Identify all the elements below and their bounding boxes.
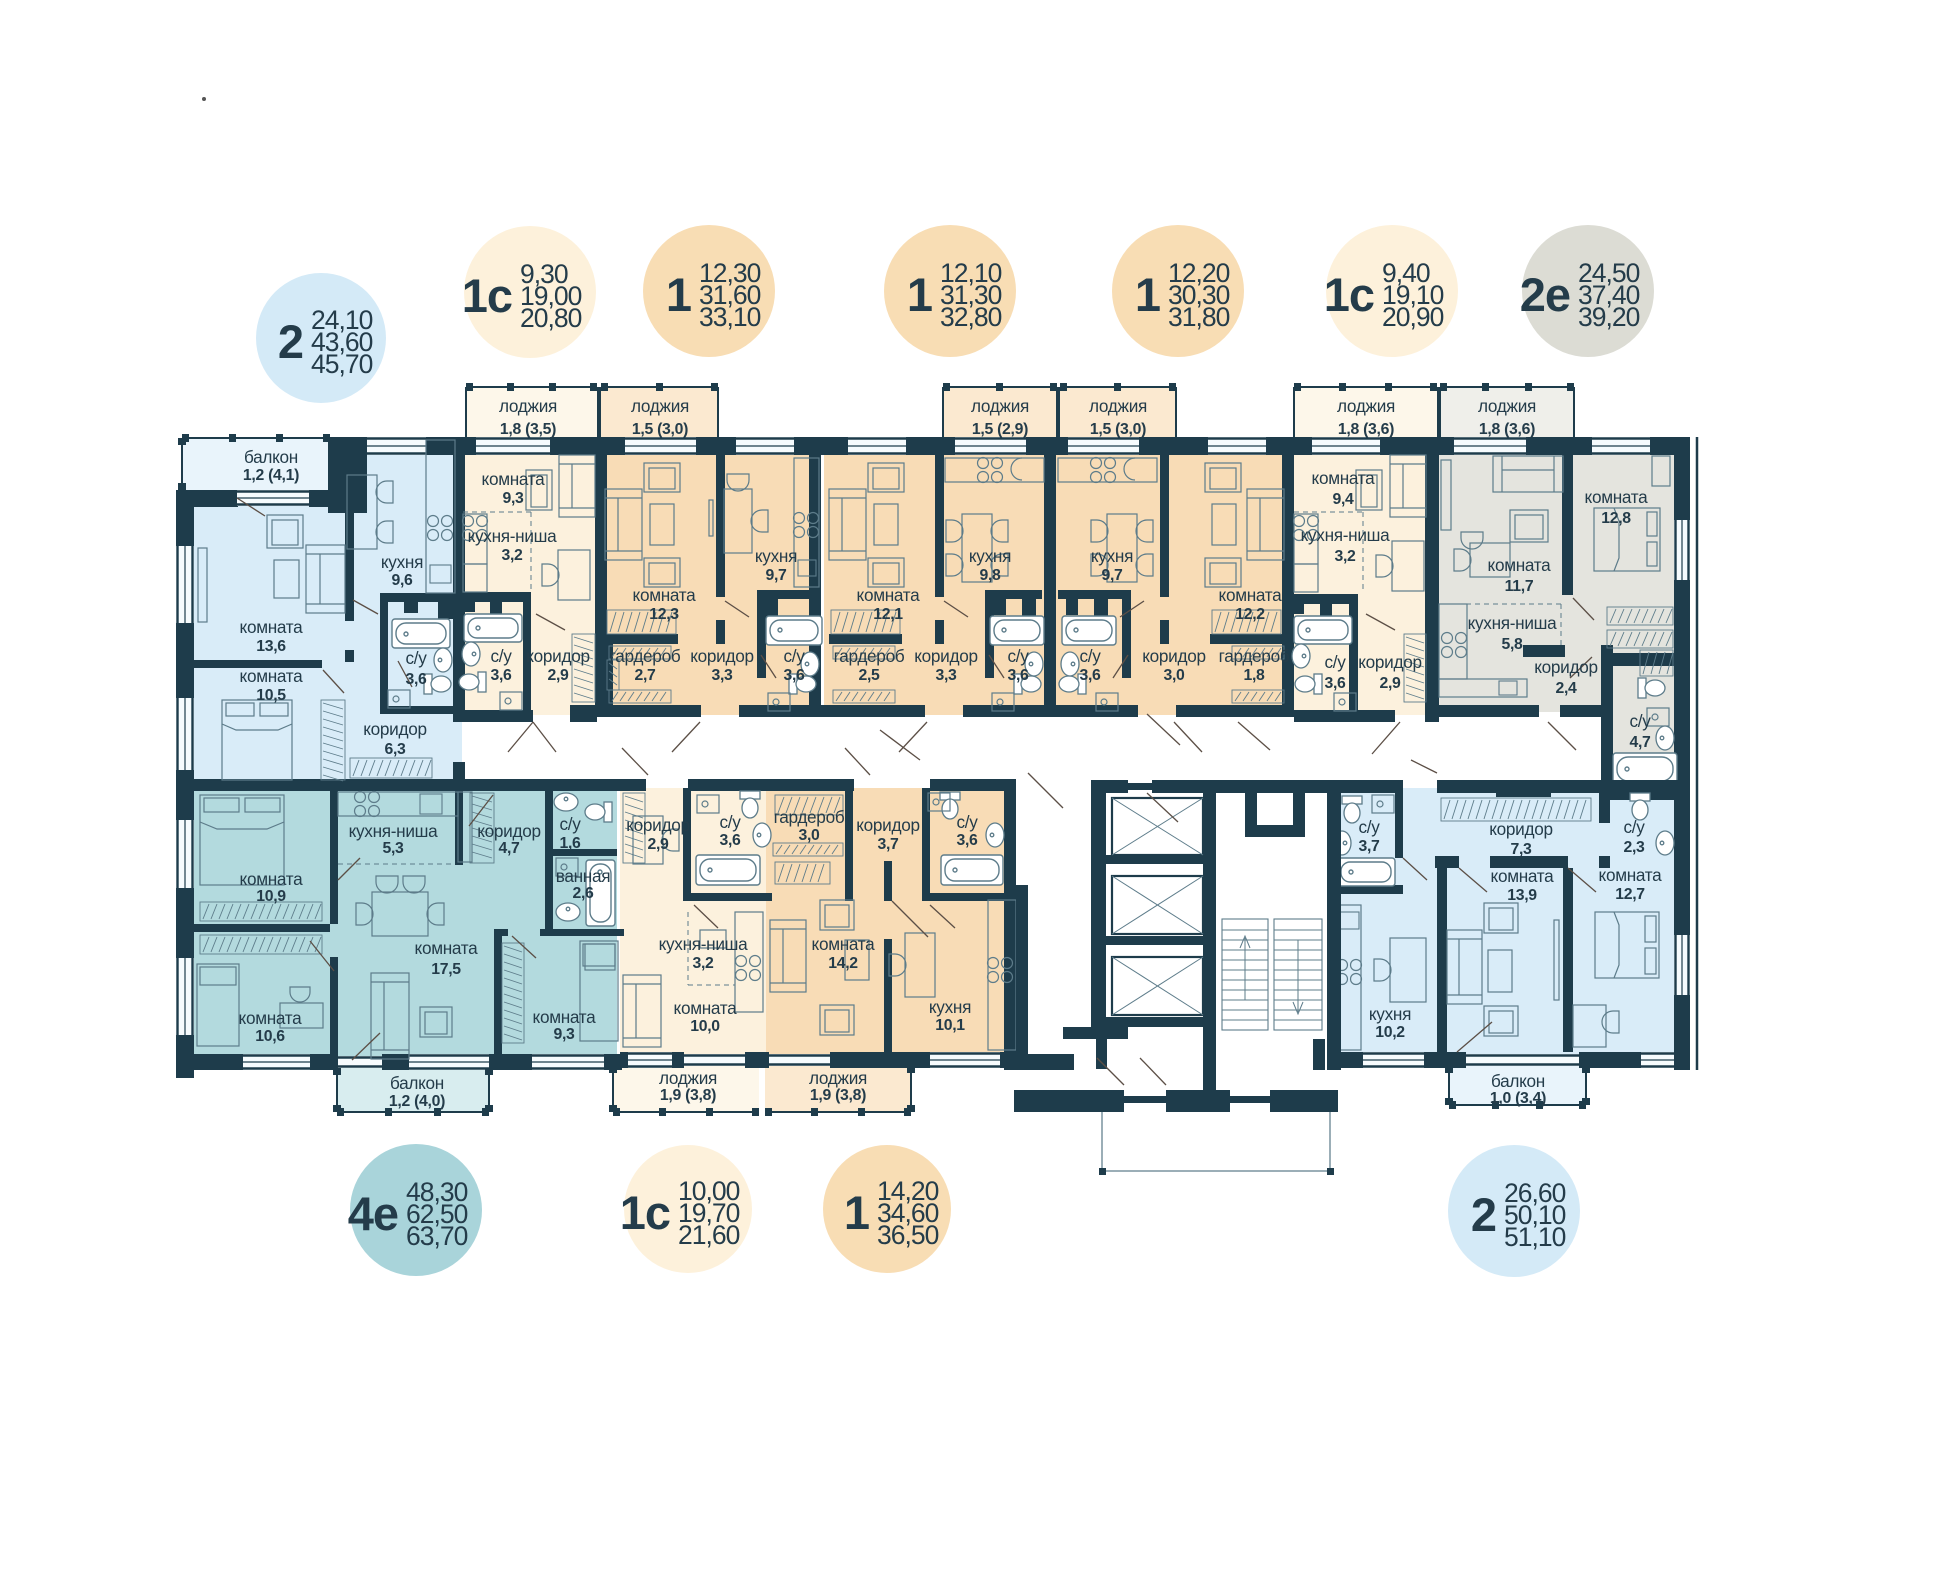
svg-text:2,9: 2,9 xyxy=(647,836,669,853)
svg-text:комната: комната xyxy=(240,617,304,637)
svg-text:2,4: 2,4 xyxy=(1555,680,1577,697)
svg-text:1: 1 xyxy=(844,1186,869,1239)
svg-text:комната: комната xyxy=(240,869,304,889)
svg-text:кухня: кухня xyxy=(1369,1004,1411,1024)
svg-text:кухня-ниша: кухня-ниша xyxy=(659,934,749,954)
svg-text:63,70: 63,70 xyxy=(406,1221,468,1251)
svg-text:3,6: 3,6 xyxy=(956,832,978,849)
svg-text:14,2: 14,2 xyxy=(828,955,858,972)
svg-text:39,20: 39,20 xyxy=(1578,302,1640,332)
svg-text:с/у: с/у xyxy=(1324,652,1346,672)
svg-text:кухня: кухня xyxy=(1091,546,1133,566)
svg-text:кухня-ниша: кухня-ниша xyxy=(468,526,558,546)
svg-text:1,9 (3,8): 1,9 (3,8) xyxy=(660,1087,716,1104)
svg-text:10,2: 10,2 xyxy=(1375,1024,1405,1041)
svg-text:9,4: 9,4 xyxy=(1332,491,1354,508)
svg-text:12,2: 12,2 xyxy=(1235,606,1265,623)
svg-text:12,7: 12,7 xyxy=(1615,886,1645,903)
svg-text:коридор: коридор xyxy=(1358,652,1421,672)
svg-text:3,2: 3,2 xyxy=(1334,548,1356,565)
svg-text:кухня-ниша: кухня-ниша xyxy=(1301,525,1391,545)
svg-text:3,0: 3,0 xyxy=(798,827,820,844)
svg-text:9,3: 9,3 xyxy=(502,490,524,507)
svg-text:коридор: коридор xyxy=(1534,657,1597,677)
svg-text:3,6: 3,6 xyxy=(405,671,427,688)
svg-text:9,8: 9,8 xyxy=(979,567,1001,584)
svg-text:36,50: 36,50 xyxy=(877,1220,939,1250)
svg-text:коридор: коридор xyxy=(526,646,589,666)
svg-text:51,10: 51,10 xyxy=(1504,1222,1566,1252)
svg-text:лоджия: лоджия xyxy=(1337,396,1395,416)
svg-text:1,0 (3,4): 1,0 (3,4) xyxy=(1490,1090,1546,1107)
svg-text:4,7: 4,7 xyxy=(1629,734,1651,751)
svg-text:коридор: коридор xyxy=(914,646,977,666)
svg-text:кухня: кухня xyxy=(969,546,1011,566)
svg-text:кухня: кухня xyxy=(929,997,971,1017)
svg-text:10,9: 10,9 xyxy=(256,888,286,905)
svg-text:с/у: с/у xyxy=(490,646,512,666)
svg-text:гардероб: гардероб xyxy=(1219,646,1290,666)
svg-text:31,80: 31,80 xyxy=(1168,302,1230,332)
svg-text:ванная: ванная xyxy=(556,866,611,886)
svg-text:1: 1 xyxy=(907,268,932,321)
svg-text:1: 1 xyxy=(666,268,691,321)
svg-text:6,3: 6,3 xyxy=(384,741,406,758)
svg-text:комната: комната xyxy=(1585,487,1649,507)
svg-text:9,6: 9,6 xyxy=(391,572,413,589)
svg-text:комната: комната xyxy=(415,938,479,958)
svg-text:3,6: 3,6 xyxy=(783,667,805,684)
svg-text:с/у: с/у xyxy=(559,814,581,834)
svg-text:комната: комната xyxy=(1312,468,1376,488)
svg-text:20,80: 20,80 xyxy=(520,303,582,333)
svg-text:комната: комната xyxy=(674,998,738,1018)
svg-text:1,6: 1,6 xyxy=(559,835,581,852)
svg-text:комната: комната xyxy=(1219,585,1283,605)
svg-text:с/у: с/у xyxy=(405,648,427,668)
svg-text:2,5: 2,5 xyxy=(858,667,880,684)
svg-text:17,5: 17,5 xyxy=(431,961,461,978)
svg-text:кухня: кухня xyxy=(755,546,797,566)
svg-text:21,60: 21,60 xyxy=(678,1220,740,1250)
svg-text:коридор: коридор xyxy=(1489,819,1552,839)
svg-text:кухня: кухня xyxy=(381,552,423,572)
svg-text:комната: комната xyxy=(482,469,546,489)
svg-text:3,6: 3,6 xyxy=(490,667,512,684)
svg-text:2,9: 2,9 xyxy=(547,667,569,684)
svg-text:балкон: балкон xyxy=(244,447,298,467)
svg-text:3,3: 3,3 xyxy=(935,667,957,684)
svg-text:3,6: 3,6 xyxy=(719,832,741,849)
svg-text:2,6: 2,6 xyxy=(572,885,594,902)
svg-text:коридор: коридор xyxy=(856,815,919,835)
svg-text:комната: комната xyxy=(812,934,876,954)
svg-text:комната: комната xyxy=(857,585,921,605)
svg-text:12,1: 12,1 xyxy=(873,606,903,623)
svg-text:с/у: с/у xyxy=(1007,646,1029,666)
svg-text:4е: 4е xyxy=(348,1187,398,1240)
svg-text:с/у: с/у xyxy=(719,812,741,832)
svg-text:коридор: коридор xyxy=(363,719,426,739)
svg-text:12,3: 12,3 xyxy=(649,606,679,623)
svg-text:коридор: коридор xyxy=(1142,646,1205,666)
svg-text:32,80: 32,80 xyxy=(940,302,1002,332)
svg-text:10,6: 10,6 xyxy=(255,1028,285,1045)
svg-text:2е: 2е xyxy=(1520,268,1570,321)
svg-text:балкон: балкон xyxy=(1491,1071,1545,1091)
svg-text:1,2 (4,1): 1,2 (4,1) xyxy=(243,467,299,484)
svg-text:с/у: с/у xyxy=(1629,711,1651,731)
svg-text:9,3: 9,3 xyxy=(553,1026,575,1043)
svg-text:лоджия: лоджия xyxy=(631,396,689,416)
svg-text:3,2: 3,2 xyxy=(501,547,523,564)
svg-text:1с: 1с xyxy=(462,269,512,322)
svg-text:3,6: 3,6 xyxy=(1324,675,1346,692)
svg-text:1,8 (3,5): 1,8 (3,5) xyxy=(500,421,556,438)
svg-text:лоджия: лоджия xyxy=(971,396,1029,416)
svg-text:1с: 1с xyxy=(620,1186,670,1239)
svg-text:1,8: 1,8 xyxy=(1243,667,1265,684)
svg-text:4,7: 4,7 xyxy=(498,840,520,857)
svg-text:1,9 (3,8): 1,9 (3,8) xyxy=(810,1087,866,1104)
svg-text:балкон: балкон xyxy=(390,1073,444,1093)
svg-text:коридор: коридор xyxy=(626,815,689,835)
svg-text:с/у: с/у xyxy=(1623,817,1645,837)
svg-text:2,9: 2,9 xyxy=(1379,675,1401,692)
svg-text:гардероб: гардероб xyxy=(610,646,681,666)
svg-text:1,5 (2,9): 1,5 (2,9) xyxy=(972,421,1028,438)
svg-text:лоджия: лоджия xyxy=(1478,396,1536,416)
svg-text:1,5 (3,0): 1,5 (3,0) xyxy=(1090,421,1146,438)
svg-text:10,5: 10,5 xyxy=(256,687,286,704)
svg-text:3,7: 3,7 xyxy=(877,836,899,853)
svg-text:13,9: 13,9 xyxy=(1507,887,1537,904)
svg-text:20,90: 20,90 xyxy=(1382,302,1444,332)
svg-text:12,8: 12,8 xyxy=(1601,510,1631,527)
svg-text:9,7: 9,7 xyxy=(765,567,787,584)
svg-text:1,5 (3,0): 1,5 (3,0) xyxy=(632,421,688,438)
svg-text:гардероб: гардероб xyxy=(834,646,905,666)
svg-text:с/у: с/у xyxy=(783,646,805,666)
svg-text:5,8: 5,8 xyxy=(1501,636,1523,653)
svg-text:лоджия: лоджия xyxy=(1089,396,1147,416)
svg-text:с/у: с/у xyxy=(1079,646,1101,666)
svg-text:2,7: 2,7 xyxy=(634,667,656,684)
svg-text:11,7: 11,7 xyxy=(1505,578,1534,595)
svg-text:3,7: 3,7 xyxy=(1358,838,1380,855)
svg-text:комната: комната xyxy=(1491,866,1555,886)
svg-text:3,6: 3,6 xyxy=(1079,667,1101,684)
svg-text:комната: комната xyxy=(1599,865,1663,885)
svg-text:2,3: 2,3 xyxy=(1623,839,1645,856)
svg-text:10,1: 10,1 xyxy=(935,1017,965,1034)
svg-text:10,0: 10,0 xyxy=(690,1018,720,1035)
svg-text:1с: 1с xyxy=(1324,268,1374,321)
svg-text:1,8 (3,6): 1,8 (3,6) xyxy=(1338,421,1394,438)
svg-text:1,8 (3,6): 1,8 (3,6) xyxy=(1479,421,1535,438)
svg-text:5,3: 5,3 xyxy=(382,840,404,857)
svg-text:3,6: 3,6 xyxy=(1007,667,1029,684)
svg-text:гардероб: гардероб xyxy=(774,807,845,827)
svg-text:коридор: коридор xyxy=(690,646,753,666)
svg-text:13,6: 13,6 xyxy=(256,638,286,655)
svg-text:2: 2 xyxy=(278,315,303,368)
svg-text:9,7: 9,7 xyxy=(1101,567,1123,584)
svg-text:кухня-ниша: кухня-ниша xyxy=(349,821,439,841)
svg-text:3,3: 3,3 xyxy=(711,667,733,684)
svg-text:2: 2 xyxy=(1471,1188,1496,1241)
svg-text:лоджия: лоджия xyxy=(659,1068,717,1088)
svg-text:1,2 (4,0): 1,2 (4,0) xyxy=(389,1093,445,1110)
svg-text:лоджия: лоджия xyxy=(809,1068,867,1088)
svg-text:3,0: 3,0 xyxy=(1163,667,1185,684)
svg-text:3,2: 3,2 xyxy=(692,955,714,972)
svg-text:коридор: коридор xyxy=(477,821,540,841)
svg-text:лоджия: лоджия xyxy=(499,396,557,416)
svg-text:комната: комната xyxy=(239,1008,303,1028)
svg-text:комната: комната xyxy=(533,1007,597,1027)
svg-text:кухня-ниша: кухня-ниша xyxy=(1468,613,1558,633)
svg-text:с/у: с/у xyxy=(956,812,978,832)
svg-text:с/у: с/у xyxy=(1358,817,1380,837)
svg-text:45,70: 45,70 xyxy=(311,349,373,379)
svg-text:комната: комната xyxy=(240,666,304,686)
svg-text:комната: комната xyxy=(633,585,697,605)
svg-text:комната: комната xyxy=(1488,555,1552,575)
svg-text:7,3: 7,3 xyxy=(1510,841,1532,858)
svg-text:33,10: 33,10 xyxy=(699,302,761,332)
svg-text:1: 1 xyxy=(1135,268,1160,321)
